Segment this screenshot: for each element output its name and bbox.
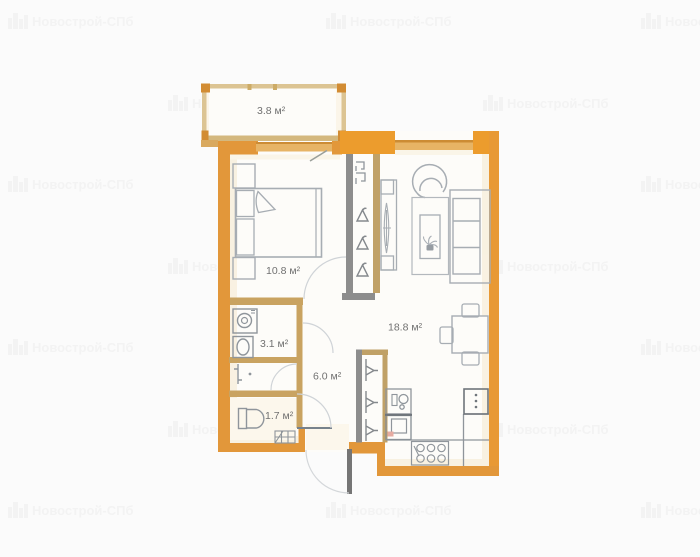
svg-text:18.8 м²: 18.8 м²	[388, 322, 423, 334]
svg-text:10.8 м²: 10.8 м²	[266, 265, 301, 277]
svg-text:3.1 м²: 3.1 м²	[260, 338, 289, 350]
svg-text:1.7 м²: 1.7 м²	[265, 410, 294, 422]
svg-text:3.8 м²: 3.8 м²	[257, 105, 286, 117]
svg-text:6.0 м²: 6.0 м²	[313, 371, 342, 383]
